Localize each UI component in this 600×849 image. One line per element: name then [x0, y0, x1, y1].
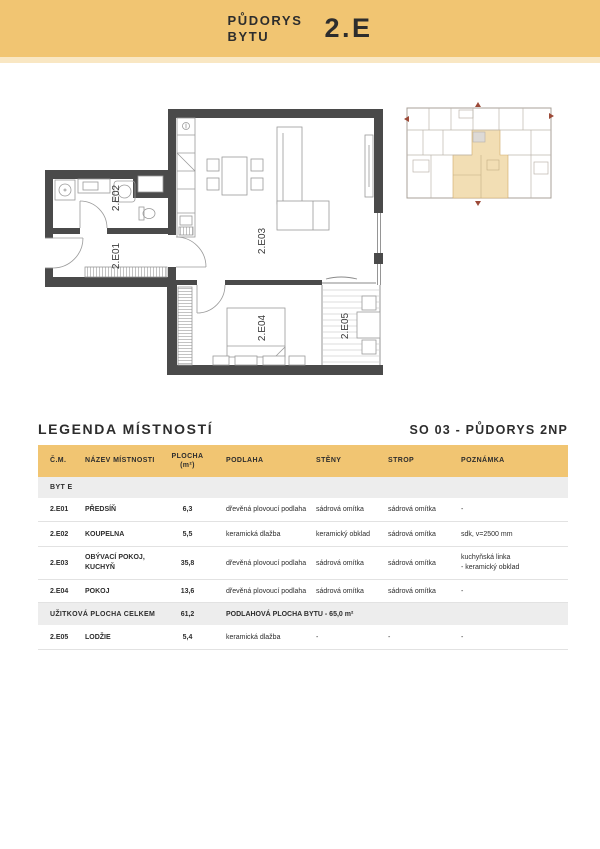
- room-label-e05: 2.E05: [340, 312, 351, 339]
- cell-plocha: 5,4: [160, 634, 215, 641]
- room-label-e03: 2.E03: [257, 227, 268, 254]
- legend-title: LEGENDA MÍSTNOSTÍ: [38, 421, 213, 437]
- cell-steny: sádrová omítka: [316, 560, 388, 567]
- floor-plan: 2.E02 2.E01 2.E03 2.E04 2.E05: [35, 95, 395, 385]
- table-row: 2.E01 PŘEDSÍŇ 6,3 dřevěná plovoucí podla…: [38, 498, 568, 522]
- cell-nazev: OBÝVACÍ POKOJ, KUCHYŇ: [85, 553, 160, 573]
- header-band-strip: [0, 57, 600, 63]
- room-label-e04: 2.E04: [257, 314, 268, 341]
- col-header-plocha-line1: PLOCHA: [160, 452, 215, 461]
- cell-strop: sádrová omítka: [388, 588, 461, 595]
- cell-strop: sádrová omítka: [388, 560, 461, 567]
- col-header-podlaha: PODLAHA: [215, 456, 316, 465]
- section-row-byt-e: BYT E: [38, 477, 568, 498]
- sofa: [277, 127, 329, 230]
- cell-plocha: 6,3: [160, 506, 215, 513]
- table-row: 2.E03 OBÝVACÍ POKOJ, KUCHYŇ 35,8 dřevěná…: [38, 547, 568, 580]
- cell-steny: sádrová omítka: [316, 588, 388, 595]
- room-legend-table: Č.M. NÁZEV MÍSTNOSTI PLOCHA (m²) PODLAHA…: [38, 445, 568, 650]
- cell-podlaha: dřevěná plovoucí podlaha: [215, 560, 316, 567]
- cell-cm: 2.E01: [38, 506, 85, 513]
- cell-steny: keramický obklad: [316, 531, 388, 538]
- col-header-poznamka: POZNÁMKA: [461, 456, 568, 465]
- cell-plocha: 13,6: [160, 588, 215, 595]
- cell-podlaha: dřevěná plovoucí podlaha: [215, 588, 316, 595]
- cell-poznamka: sdk, v=2500 mm: [461, 531, 568, 538]
- cell-cm: 2.E05: [38, 634, 85, 641]
- cell-cm: 2.E02: [38, 531, 85, 538]
- cell-poznamka: kuchyňská linka - keramický obklad: [461, 553, 568, 573]
- col-header-nazev: NÁZEV MÍSTNOSTI: [85, 456, 160, 465]
- cell-plocha: 5,5: [160, 531, 215, 538]
- cell-nazev: KOUPELNA: [85, 531, 160, 538]
- col-header-steny: STĚNY: [316, 456, 388, 465]
- header-titles: PŮDORYS BYTU 2.E: [0, 0, 600, 57]
- total-label: UŽITKOVÁ PLOCHA CELKEM: [38, 611, 160, 618]
- hall-wardrobe: [85, 267, 167, 277]
- cell-nazev: LODŽIE: [85, 634, 160, 641]
- cell-podlaha: keramická dlažba: [215, 531, 316, 538]
- col-header-strop: STROP: [388, 456, 461, 465]
- cell-podlaha: dřevěná plovoucí podlaha: [215, 506, 316, 513]
- cell-plocha: 35,8: [160, 560, 215, 567]
- total-note: PODLAHOVÁ PLOCHA BYTU - 65,0 m²: [215, 611, 568, 618]
- total-area: 61,2: [160, 611, 215, 618]
- room-label-e02: 2.E02: [111, 184, 122, 211]
- cell-podlaha: keramická dlažba: [215, 634, 316, 641]
- title-line1: PŮDORYS: [227, 13, 302, 29]
- cell-strop: -: [388, 634, 461, 641]
- installation-shaft: [138, 176, 163, 192]
- table-row: 2.E02 KOUPELNA 5,5 keramická dlažba kera…: [38, 522, 568, 547]
- table-row: 2.E05 LODŽIE 5,4 keramická dlažba - - -: [38, 625, 568, 650]
- kitchen-counter: [177, 118, 195, 237]
- loggia-furniture: [323, 285, 380, 365]
- col-header-cm: Č.M.: [38, 456, 85, 465]
- cell-steny: -: [316, 634, 388, 641]
- table-row: 2.E04 POKOJ 13,6 dřevěná plovoucí podlah…: [38, 580, 568, 603]
- legend-header: LEGENDA MÍSTNOSTÍ SO 03 - PŮDORYS 2NP: [38, 421, 568, 437]
- site-overview: [403, 100, 555, 208]
- title-line2: BYTU: [227, 29, 302, 45]
- col-header-plocha: PLOCHA (m²): [160, 452, 215, 470]
- cell-cm: 2.E04: [38, 588, 85, 595]
- cell-strop: sádrová omítka: [388, 506, 461, 513]
- cell-cm: 2.E03: [38, 560, 85, 567]
- cell-steny: sádrová omítka: [316, 506, 388, 513]
- drawing-type-title: PŮDORYS BYTU: [227, 13, 302, 44]
- dining-set: [207, 157, 263, 195]
- drawing-reference: SO 03 - PŮDORYS 2NP: [410, 423, 569, 437]
- unit-number: 2.E: [324, 13, 372, 44]
- cell-poznamka: -: [461, 634, 568, 641]
- total-row: UŽITKOVÁ PLOCHA CELKEM 61,2 PODLAHOVÁ PL…: [38, 603, 568, 625]
- cell-poznamka: -: [461, 588, 568, 595]
- tv-board: [365, 135, 373, 197]
- cell-nazev: POKOJ: [85, 588, 160, 595]
- cell-strop: sádrová omítka: [388, 531, 461, 538]
- cell-nazev: PŘEDSÍŇ: [85, 506, 160, 513]
- table-header-row: Č.M. NÁZEV MÍSTNOSTI PLOCHA (m²) PODLAHA…: [38, 445, 568, 477]
- room-label-e01: 2.E01: [111, 242, 122, 269]
- cell-poznamka: -: [461, 506, 568, 513]
- col-header-plocha-line2: (m²): [160, 461, 215, 470]
